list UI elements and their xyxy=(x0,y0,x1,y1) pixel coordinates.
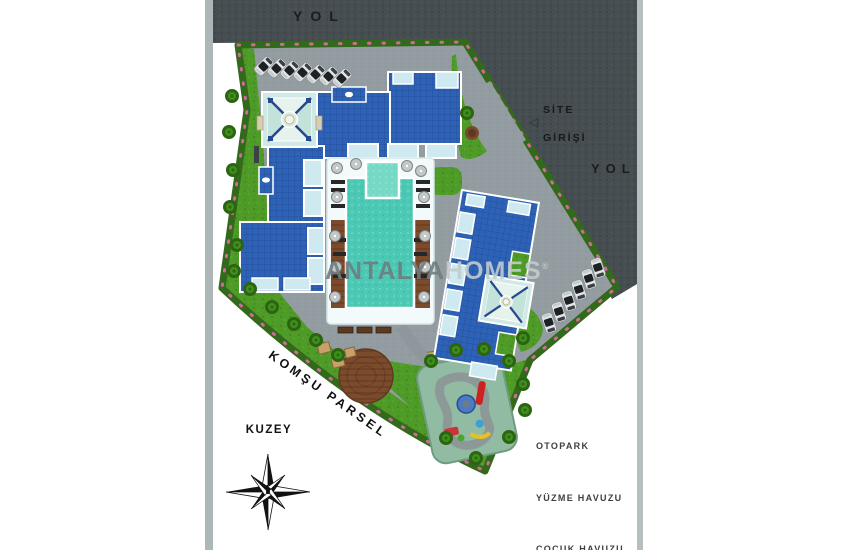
security-kiosk xyxy=(332,87,366,102)
balcony xyxy=(284,278,310,290)
legend-item-cocuk-havuzu: ÇOCUK HAVUZU xyxy=(536,542,648,550)
signpost xyxy=(254,146,259,163)
tree xyxy=(465,126,479,140)
balcony xyxy=(466,194,486,208)
courtyard-notch xyxy=(495,332,516,357)
watermark: ANTALYAHOMES® xyxy=(325,257,549,286)
watermark-brand-primary: ANTALYA xyxy=(325,257,445,285)
north-label: KUZEY xyxy=(240,424,298,436)
registered-mark: ® xyxy=(542,261,550,271)
site-entrance-line1: SİTE xyxy=(543,104,574,116)
balcony xyxy=(304,160,322,186)
site-legend: OTOPARK YÜZME HAVUZU ÇOCUK HAVUZU ÇOCUK … xyxy=(536,403,648,550)
road-label-top: YOL xyxy=(293,8,346,24)
site-entrance-line2: GİRİŞİ xyxy=(543,132,587,144)
site-entrance-label: SİTE GİRİŞİ xyxy=(543,103,587,145)
balcony xyxy=(436,72,458,88)
balcony xyxy=(388,144,418,158)
legend-item-otopark: OTOPARK xyxy=(536,439,648,455)
left-page-divider xyxy=(205,0,213,550)
balcony xyxy=(348,144,378,158)
pool-area xyxy=(327,158,434,333)
balcony xyxy=(444,289,462,311)
kids-pool xyxy=(366,162,399,198)
balcony xyxy=(457,212,475,234)
legend-item-yuzme-havuzu: YÜZME HAVUZU xyxy=(536,491,648,507)
site-plan-page: YOL YOL ◁ SİTE GİRİŞİ KOMŞU PARSEL KUZEY… xyxy=(0,0,850,550)
poolside-loungers xyxy=(338,327,391,333)
balcony xyxy=(393,72,413,84)
skylight-pyramid-1 xyxy=(257,92,322,147)
road-label-right: YOL xyxy=(591,161,636,176)
balcony xyxy=(440,315,458,337)
balcony xyxy=(304,190,322,216)
entrance-arrow-icon: ◁ xyxy=(529,115,538,129)
balcony xyxy=(308,228,324,254)
compass-rose xyxy=(226,454,310,530)
balcony xyxy=(426,144,456,158)
watermark-brand-secondary: HOMES xyxy=(445,257,542,285)
